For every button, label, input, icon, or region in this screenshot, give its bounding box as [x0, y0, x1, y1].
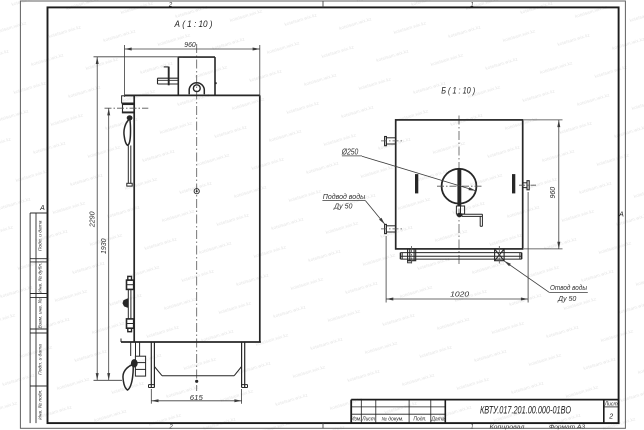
- svg-text:Подп. и дата: Подп. и дата: [38, 220, 44, 251]
- svg-text:Дата: Дата: [430, 416, 444, 422]
- svg-text:Подп.: Подп.: [413, 416, 426, 422]
- svg-text:№ докум.: № докум.: [381, 416, 403, 422]
- svg-text:Формат А3: Формат А3: [549, 424, 586, 430]
- svg-text:1020: 1020: [450, 290, 469, 299]
- svg-text:Лист: Лист: [361, 416, 375, 422]
- svg-text:1: 1: [470, 3, 473, 9]
- svg-text:Копировал: Копировал: [490, 424, 526, 430]
- svg-text:А: А: [39, 205, 45, 212]
- svg-text:Отвод воды: Отвод воды: [550, 284, 588, 292]
- svg-text:Подп. и дата: Подп. и дата: [38, 344, 44, 375]
- svg-text:Ду 50: Ду 50: [557, 296, 576, 303]
- svg-text:Лист: Лист: [604, 402, 618, 408]
- svg-text:2: 2: [168, 424, 173, 430]
- svg-text:Подвод воды: Подвод воды: [323, 193, 366, 201]
- svg-text:615: 615: [190, 393, 204, 402]
- svg-text:Б ( 1 : 10 ): Б ( 1 : 10 ): [441, 86, 475, 97]
- svg-text:КВТУ.017.201.00.000-01ВО: КВТУ.017.201.00.000-01ВО: [480, 404, 571, 416]
- svg-text:2: 2: [608, 414, 613, 421]
- svg-text:Изм.: Изм.: [351, 416, 362, 422]
- svg-text:Ду 50: Ду 50: [333, 203, 352, 210]
- svg-text:Инв. № подл.: Инв. № подл.: [38, 389, 44, 419]
- svg-text:1930: 1930: [101, 238, 108, 254]
- svg-text:960: 960: [550, 187, 557, 199]
- svg-text:2: 2: [168, 3, 173, 9]
- svg-text:Ø250: Ø250: [341, 147, 358, 157]
- svg-text:А: А: [618, 212, 624, 219]
- svg-text:1: 1: [470, 424, 473, 430]
- svg-text:Взам. инв. №: Взам. инв. №: [38, 298, 44, 328]
- svg-text:А ( 1 : 10 ): А ( 1 : 10 ): [174, 19, 213, 30]
- svg-text:2290: 2290: [90, 211, 97, 228]
- svg-text:960: 960: [184, 40, 196, 49]
- svg-text:Инв. № дубл.: Инв. № дубл.: [38, 263, 44, 293]
